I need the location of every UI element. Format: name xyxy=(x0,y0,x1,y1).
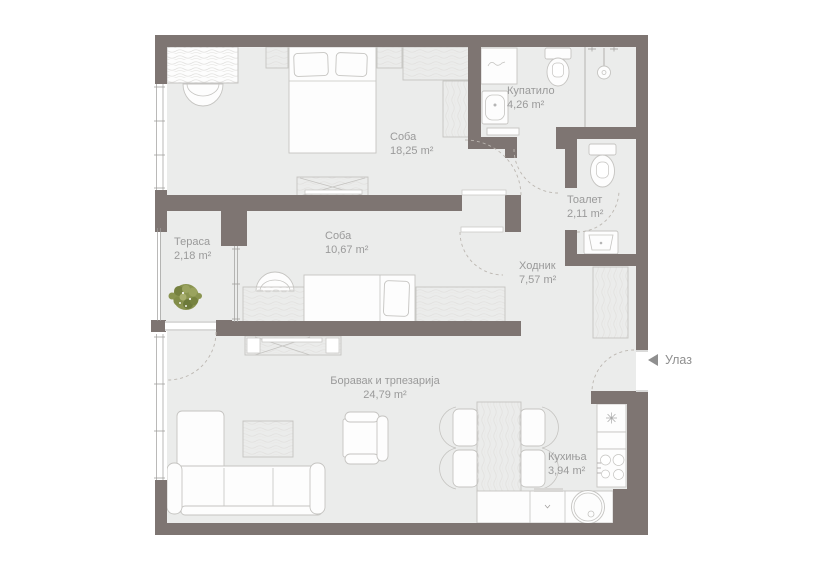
shelf xyxy=(487,128,519,135)
room-label-soba-2: Соба 10,67 m² xyxy=(325,229,368,257)
room-label-toalet: Тоалет 2,11 m² xyxy=(567,193,603,221)
room-name: Кухиња xyxy=(548,450,587,464)
room-area: 7,57 m² xyxy=(519,273,556,287)
room-name: Тераса xyxy=(174,235,211,249)
door-leaf-bedroom xyxy=(462,190,506,195)
floorplan: Соба 18,25 m² Купатило 4,26 m² Тоалет 2,… xyxy=(0,0,840,570)
door-leaf-bedroom2 xyxy=(461,227,503,232)
room-name: Купатило xyxy=(507,84,555,98)
chair xyxy=(453,409,478,446)
kitchen-sink xyxy=(572,491,605,524)
room-label-kuhinja: Кухиња 3,94 m² xyxy=(548,450,587,478)
hallway-wardrobe xyxy=(593,267,628,338)
sink-bathroom xyxy=(482,91,508,124)
room-area: 24,79 m² xyxy=(300,388,470,402)
counter-edge xyxy=(534,488,563,492)
pillow xyxy=(383,281,409,317)
dining-table xyxy=(477,402,521,492)
washing-machine xyxy=(481,48,517,84)
counter-bottom xyxy=(477,488,613,524)
stove xyxy=(597,449,626,487)
chair xyxy=(453,450,478,487)
room-name: Тоалет xyxy=(567,193,603,207)
room-area: 3,94 m² xyxy=(548,464,587,478)
armchair xyxy=(343,412,388,464)
desk xyxy=(167,47,238,83)
tv-console xyxy=(245,336,341,355)
sink-toilet xyxy=(584,231,618,254)
single-bed xyxy=(304,275,415,322)
room-label-soba-1: Соба 18,25 m² xyxy=(390,130,433,158)
nightstand-right xyxy=(377,47,402,68)
room-label-hodnik: Ходник 7,57 m² xyxy=(519,259,556,287)
room-name: Ходник xyxy=(519,259,556,273)
entrance-arrow-icon xyxy=(648,354,658,366)
entrance-label: Улаз xyxy=(665,353,692,367)
toilet-bathroom xyxy=(545,48,571,86)
chair xyxy=(520,409,545,446)
room-label-boravak: Боравак и трпезарија 24,79 m² xyxy=(300,374,470,402)
pillow xyxy=(336,52,368,76)
toilet-wc xyxy=(589,144,616,187)
floorplan-canvas xyxy=(0,0,840,570)
chair xyxy=(520,450,545,487)
room-area: 18,25 m² xyxy=(390,144,433,158)
room-area: 10,67 m² xyxy=(325,243,368,257)
room-area: 4,26 m² xyxy=(507,98,555,112)
double-bed xyxy=(289,47,376,153)
room-area: 2,18 m² xyxy=(174,249,211,263)
pillow xyxy=(294,52,329,76)
room-name: Соба xyxy=(325,229,368,243)
window-living xyxy=(153,334,167,480)
counter-right xyxy=(597,432,626,449)
window-bedroom xyxy=(153,84,167,190)
wardrobe-left xyxy=(243,287,304,322)
wardrobe-right xyxy=(416,287,505,322)
entrance-marker: Улаз xyxy=(648,353,692,367)
room-label-terasa: Тераса 2,18 m² xyxy=(174,235,211,263)
coffee-table xyxy=(243,421,293,457)
dresser-tv xyxy=(297,177,368,197)
nightstand-left xyxy=(266,47,288,68)
room-label-kupatilo: Купатило 4,26 m² xyxy=(507,84,555,112)
room-name: Боравак и трпезарија xyxy=(300,374,470,388)
fridge xyxy=(597,404,626,432)
terrace-door xyxy=(165,321,216,331)
wardrobe-top xyxy=(403,47,477,80)
entrance-opening xyxy=(636,350,648,392)
room-name: Соба xyxy=(390,130,433,144)
room-area: 2,11 m² xyxy=(567,207,603,221)
